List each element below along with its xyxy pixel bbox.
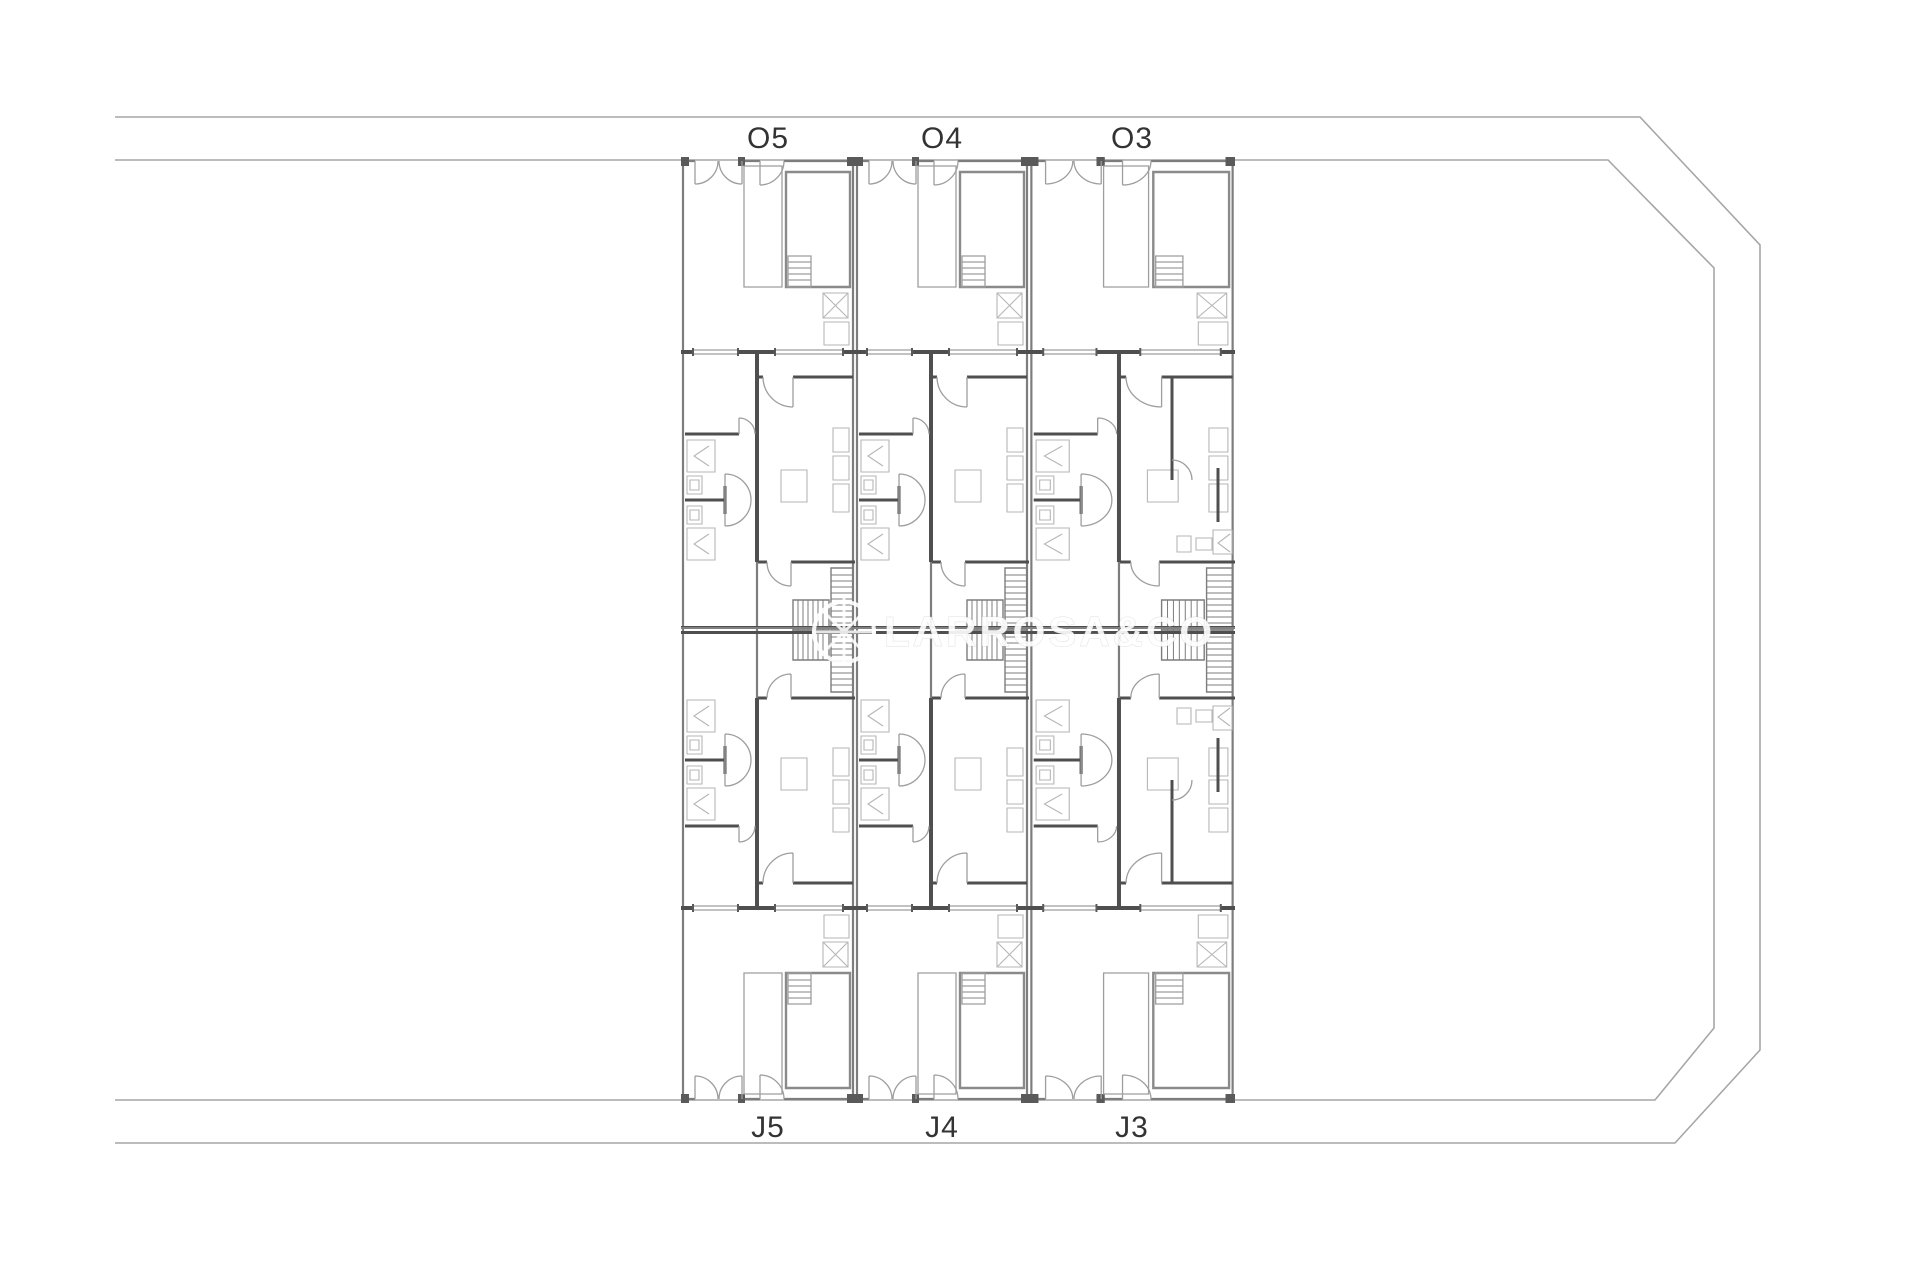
- unit-J3-bath-extras: [1172, 706, 1232, 882]
- unit-J3: [1029, 628, 1235, 1103]
- unit-label-O5: O5: [747, 122, 789, 155]
- compass-circle-icon: [812, 598, 876, 666]
- unit-J5: [681, 628, 855, 1103]
- watermark-text: LARROSA&CO: [884, 608, 1215, 655]
- unit-label-J5: J5: [751, 1111, 785, 1144]
- watermark: LARROSA&CO: [812, 598, 1215, 666]
- floor-plan-svg: O5 O4 O3 J5 J4 J3 LARROSA&CO: [0, 0, 1920, 1280]
- unit-O3-bath-extras: [1172, 378, 1232, 554]
- unit-label-O3: O3: [1111, 122, 1153, 155]
- unit-label-J4: J4: [925, 1111, 959, 1144]
- unit-O4: [855, 157, 1029, 632]
- unit-label-J3: J3: [1115, 1111, 1149, 1144]
- unit-label-O4: O4: [921, 122, 963, 155]
- unit-O5: [681, 157, 855, 632]
- floor-plan-canvas: O5 O4 O3 J5 J4 J3 LARROSA&CO: [0, 0, 1920, 1280]
- unit-O3: [1029, 157, 1235, 632]
- unit-J4: [855, 628, 1029, 1103]
